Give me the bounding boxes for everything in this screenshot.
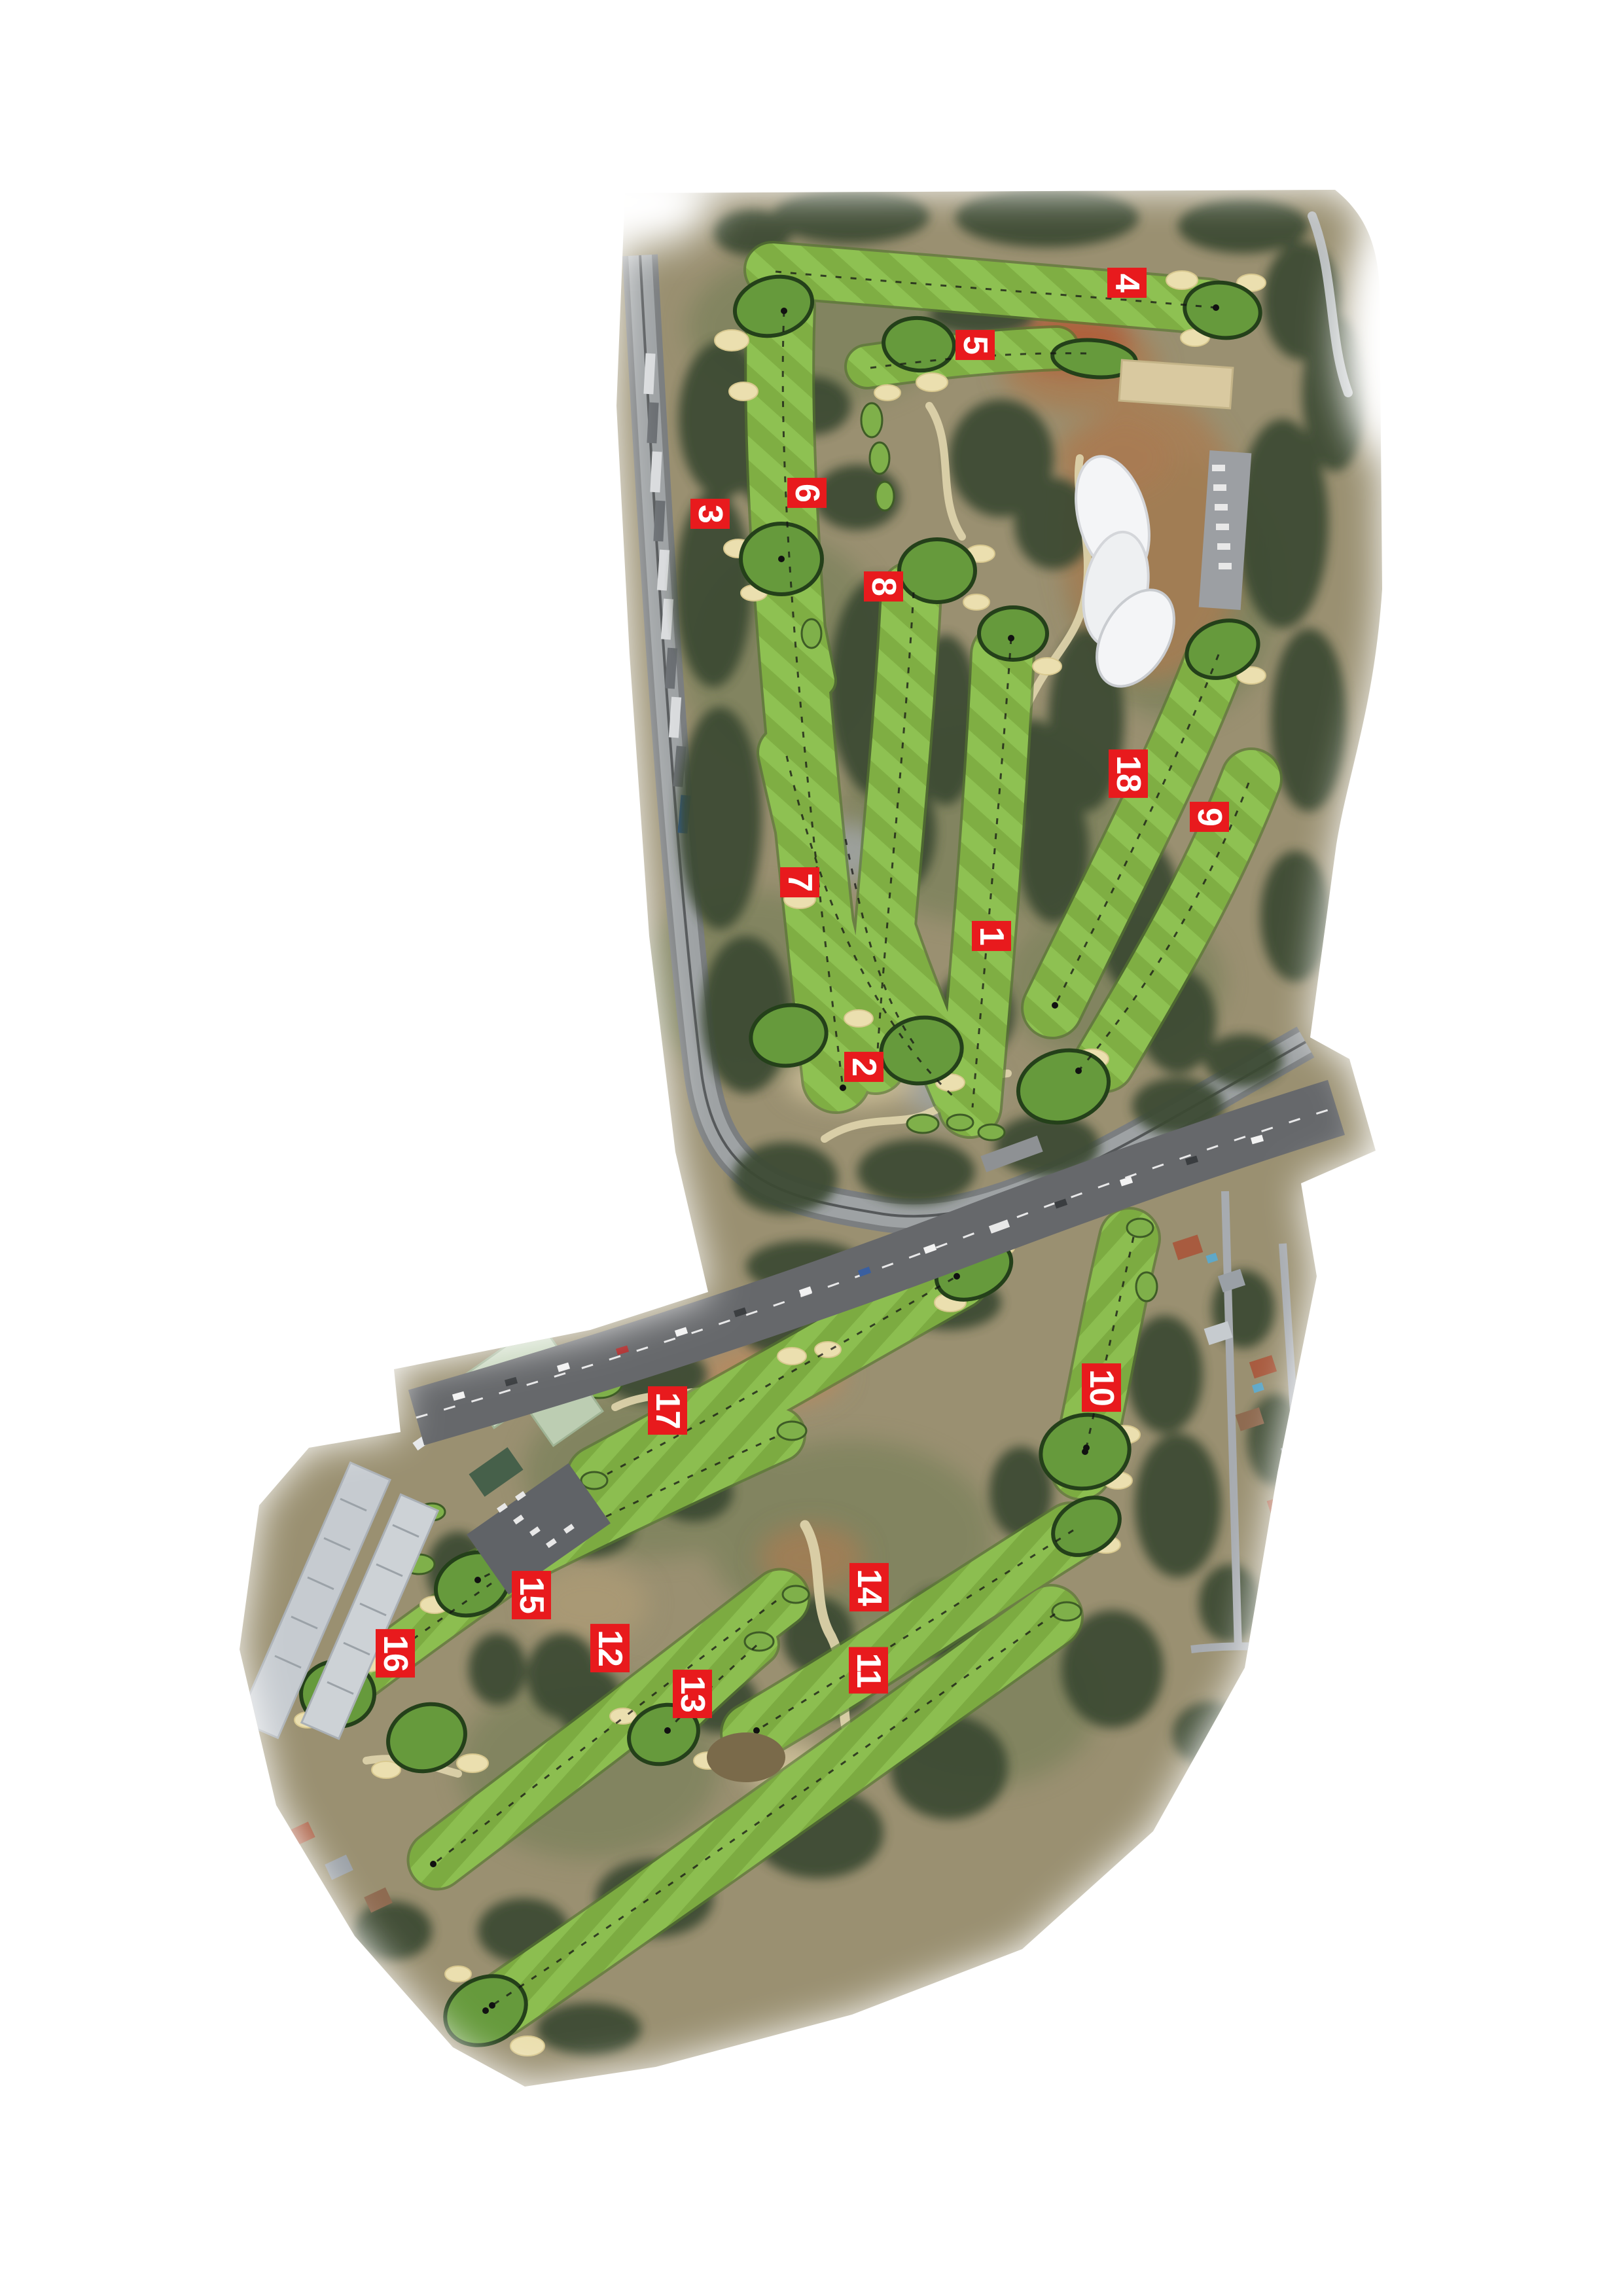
hole-badge-15: 15 (512, 1571, 551, 1619)
hole-badge-13: 13 (673, 1670, 712, 1718)
hole-badge-11: 11 (849, 1647, 888, 1694)
hole-badge-1: 1 (972, 921, 1011, 951)
hole-badge-7: 7 (780, 867, 819, 897)
hole-badge-6: 6 (787, 478, 827, 508)
hole-badge-14: 14 (849, 1563, 889, 1611)
hole-badge-8: 8 (864, 571, 903, 601)
hole-badge-16: 16 (376, 1629, 415, 1677)
hole-badge-5: 5 (955, 330, 995, 360)
hole-badge-2: 2 (844, 1052, 883, 1082)
hole-badge-10: 10 (1082, 1363, 1121, 1412)
hole-badge-4: 4 (1107, 268, 1147, 298)
page: S STRATHFIELD GOLF CLUB EST. 1931 (0, 0, 1623, 2296)
hole-badge-18: 18 (1109, 749, 1148, 798)
hole-badge-9: 9 (1190, 802, 1229, 832)
hole-badge-17: 17 (648, 1386, 687, 1435)
hole-badge-12: 12 (590, 1624, 630, 1672)
hole-badges: 123456789101112131415161718 (0, 0, 1623, 2296)
hole-badge-3: 3 (690, 499, 730, 529)
